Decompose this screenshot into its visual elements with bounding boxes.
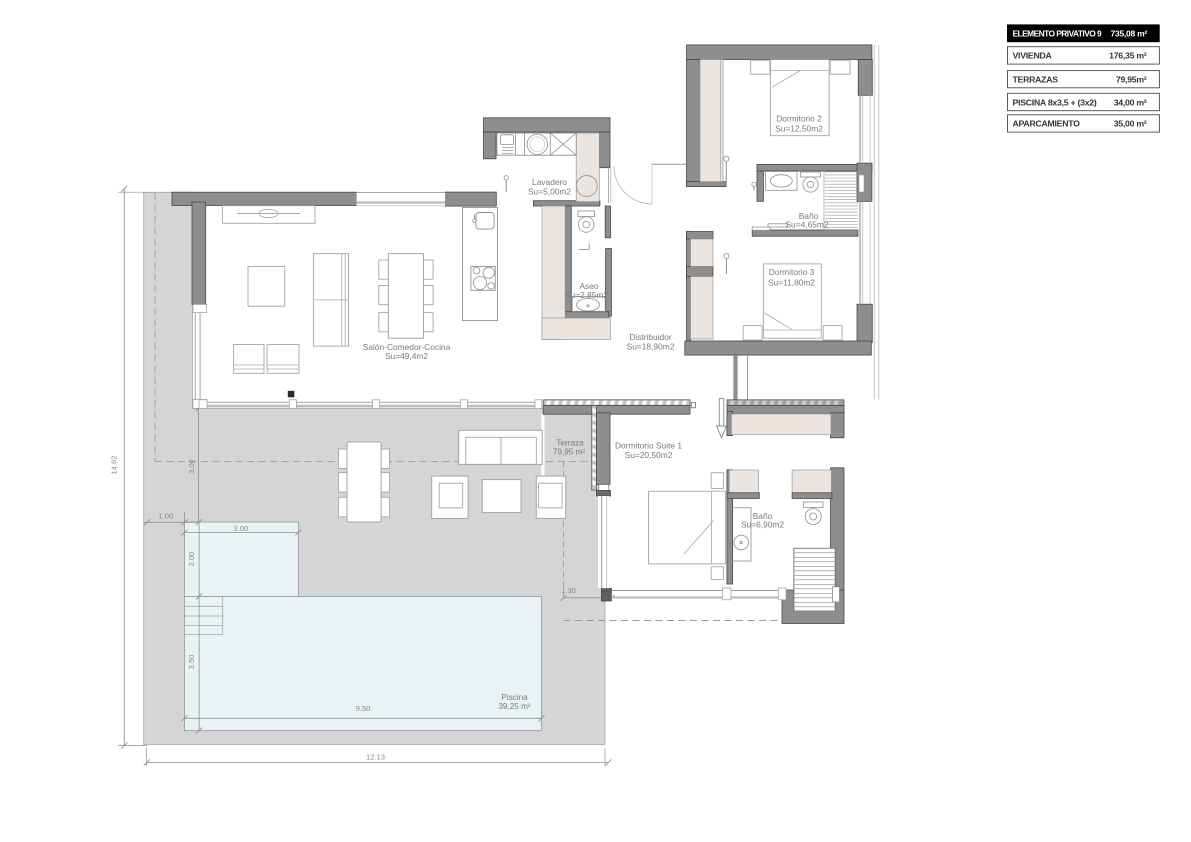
svg-text:Terraza: Terraza xyxy=(556,439,584,448)
svg-text:Piscina: Piscina xyxy=(501,693,528,702)
svg-text:35,00 m²: 35,00 m² xyxy=(1114,119,1147,129)
svg-text:1.30: 1.30 xyxy=(561,586,576,595)
svg-text:Dormitorio 3: Dormitorio 3 xyxy=(769,267,815,277)
svg-text:3.00: 3.00 xyxy=(233,524,248,533)
svg-text:12.13: 12.13 xyxy=(366,753,385,762)
svg-text:Su=20,50m2: Su=20,50m2 xyxy=(625,450,673,460)
svg-text:Su=49,4m2: Su=49,4m2 xyxy=(385,351,428,361)
svg-text:PISCINA 8x3,5 + (3x2): PISCINA 8x3,5 + (3x2) xyxy=(1013,97,1097,107)
svg-text:176,35 m²: 176,35 m² xyxy=(1109,51,1147,61)
svg-text:Su=5,00m2: Su=5,00m2 xyxy=(528,187,571,197)
svg-text:Su=12,50m2: Su=12,50m2 xyxy=(775,124,823,134)
svg-text:3.50: 3.50 xyxy=(187,655,196,670)
svg-text:TERRAZAS: TERRAZAS xyxy=(1013,75,1059,85)
svg-text:79,95m²: 79,95m² xyxy=(1116,75,1147,85)
svg-text:VIVIENDA: VIVIENDA xyxy=(1013,51,1053,61)
svg-text:Distribuidor: Distribuidor xyxy=(629,332,672,342)
svg-text:Su=18,90m2: Su=18,90m2 xyxy=(627,342,675,352)
svg-text:Su=6,90m2: Su=6,90m2 xyxy=(741,520,784,530)
svg-text:Dormitorio Suite 1: Dormitorio Suite 1 xyxy=(615,440,682,450)
svg-text:39,25 m²: 39,25 m² xyxy=(498,702,531,711)
svg-text:ELEMENTO PRIVATIVO 9: ELEMENTO PRIVATIVO 9 xyxy=(1013,29,1102,39)
svg-text:735,08 m²: 735,08 m² xyxy=(1111,29,1148,39)
svg-text:Su=4,65m2: Su=4,65m2 xyxy=(785,219,828,229)
svg-text:Dormitorio 2: Dormitorio 2 xyxy=(776,114,822,124)
svg-text:34,00 m²: 34,00 m² xyxy=(1114,97,1147,107)
svg-text:Lavadero: Lavadero xyxy=(532,177,567,187)
svg-text:79,95 m²: 79,95 m² xyxy=(553,448,586,457)
svg-text:Su=2,85m2: Su=2,85m2 xyxy=(565,290,608,300)
svg-text:1.00: 1.00 xyxy=(158,512,173,521)
svg-text:2.00: 2.00 xyxy=(187,552,196,567)
svg-text:14.62: 14.62 xyxy=(110,455,119,474)
svg-text:Su=11,80m2: Su=11,80m2 xyxy=(768,277,815,287)
svg-text:APARCAMIENTO: APARCAMIENTO xyxy=(1013,119,1081,129)
svg-text:9.50: 9.50 xyxy=(356,704,371,713)
svg-text:3.00: 3.00 xyxy=(187,459,196,474)
